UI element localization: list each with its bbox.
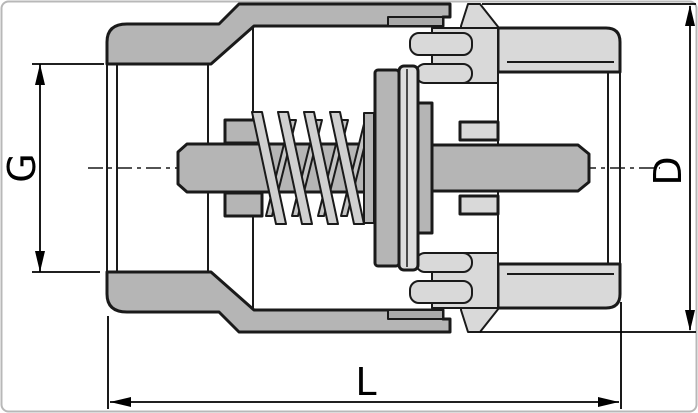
g-label: G	[0, 153, 44, 182]
spring-retainer	[364, 113, 374, 223]
backing-washer	[418, 103, 432, 233]
d-label: D	[646, 156, 690, 185]
seat-face-bottom	[416, 253, 472, 272]
l-label: L	[355, 360, 376, 404]
thread-tongue-top	[410, 33, 472, 55]
guide-block-left-bottom	[225, 193, 262, 216]
valve-drawing: G D L	[0, 0, 698, 413]
union-nut-step-top	[388, 17, 443, 26]
right-body-upper-section	[498, 28, 620, 72]
right-body-lower-section	[498, 264, 620, 308]
poppet-disc	[375, 70, 399, 266]
seal-disc	[399, 66, 418, 270]
valve-drawing-canvas: G D L	[0, 0, 698, 413]
valve-stem-right	[432, 145, 589, 191]
seat-face-top	[416, 64, 472, 83]
thread-tongue-bottom	[410, 281, 472, 303]
union-nut-step-bottom	[388, 310, 443, 319]
guide-block-right-bottom	[460, 196, 498, 214]
guide-block-right-top	[460, 122, 498, 140]
